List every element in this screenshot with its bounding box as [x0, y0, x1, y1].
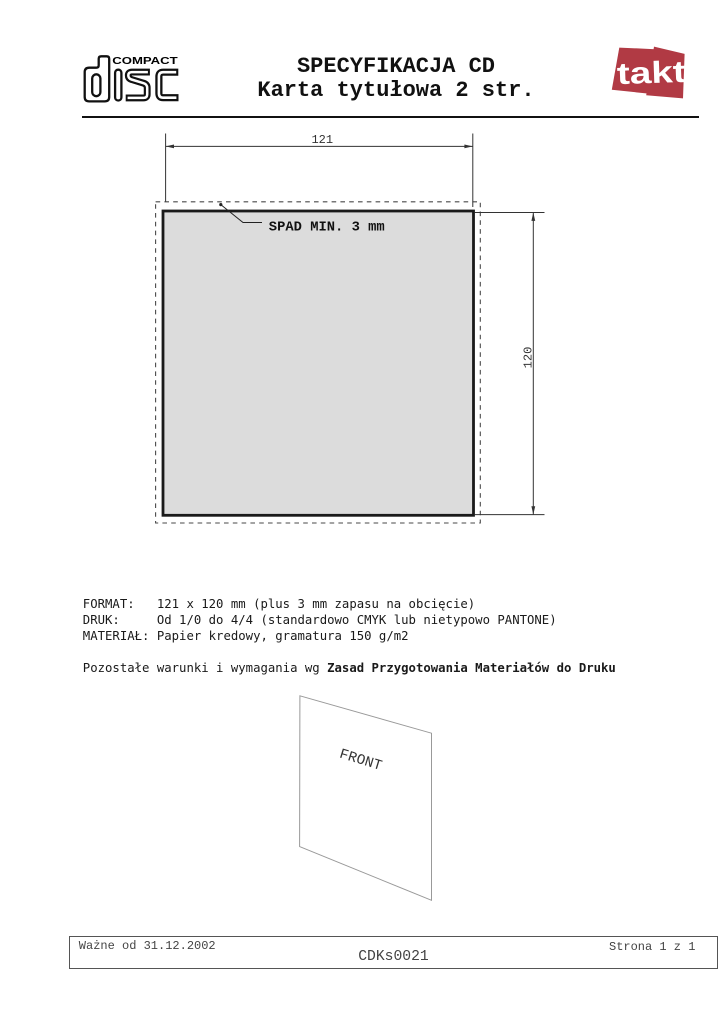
svg-text:121: 121 [311, 133, 333, 147]
svg-text:COMPACT: COMPACT [112, 55, 178, 66]
svg-text:takt: takt [616, 55, 686, 92]
svg-text:120: 120 [522, 347, 536, 369]
svg-text:SPAD MIN. 3 mm: SPAD MIN. 3 mm [269, 221, 385, 236]
